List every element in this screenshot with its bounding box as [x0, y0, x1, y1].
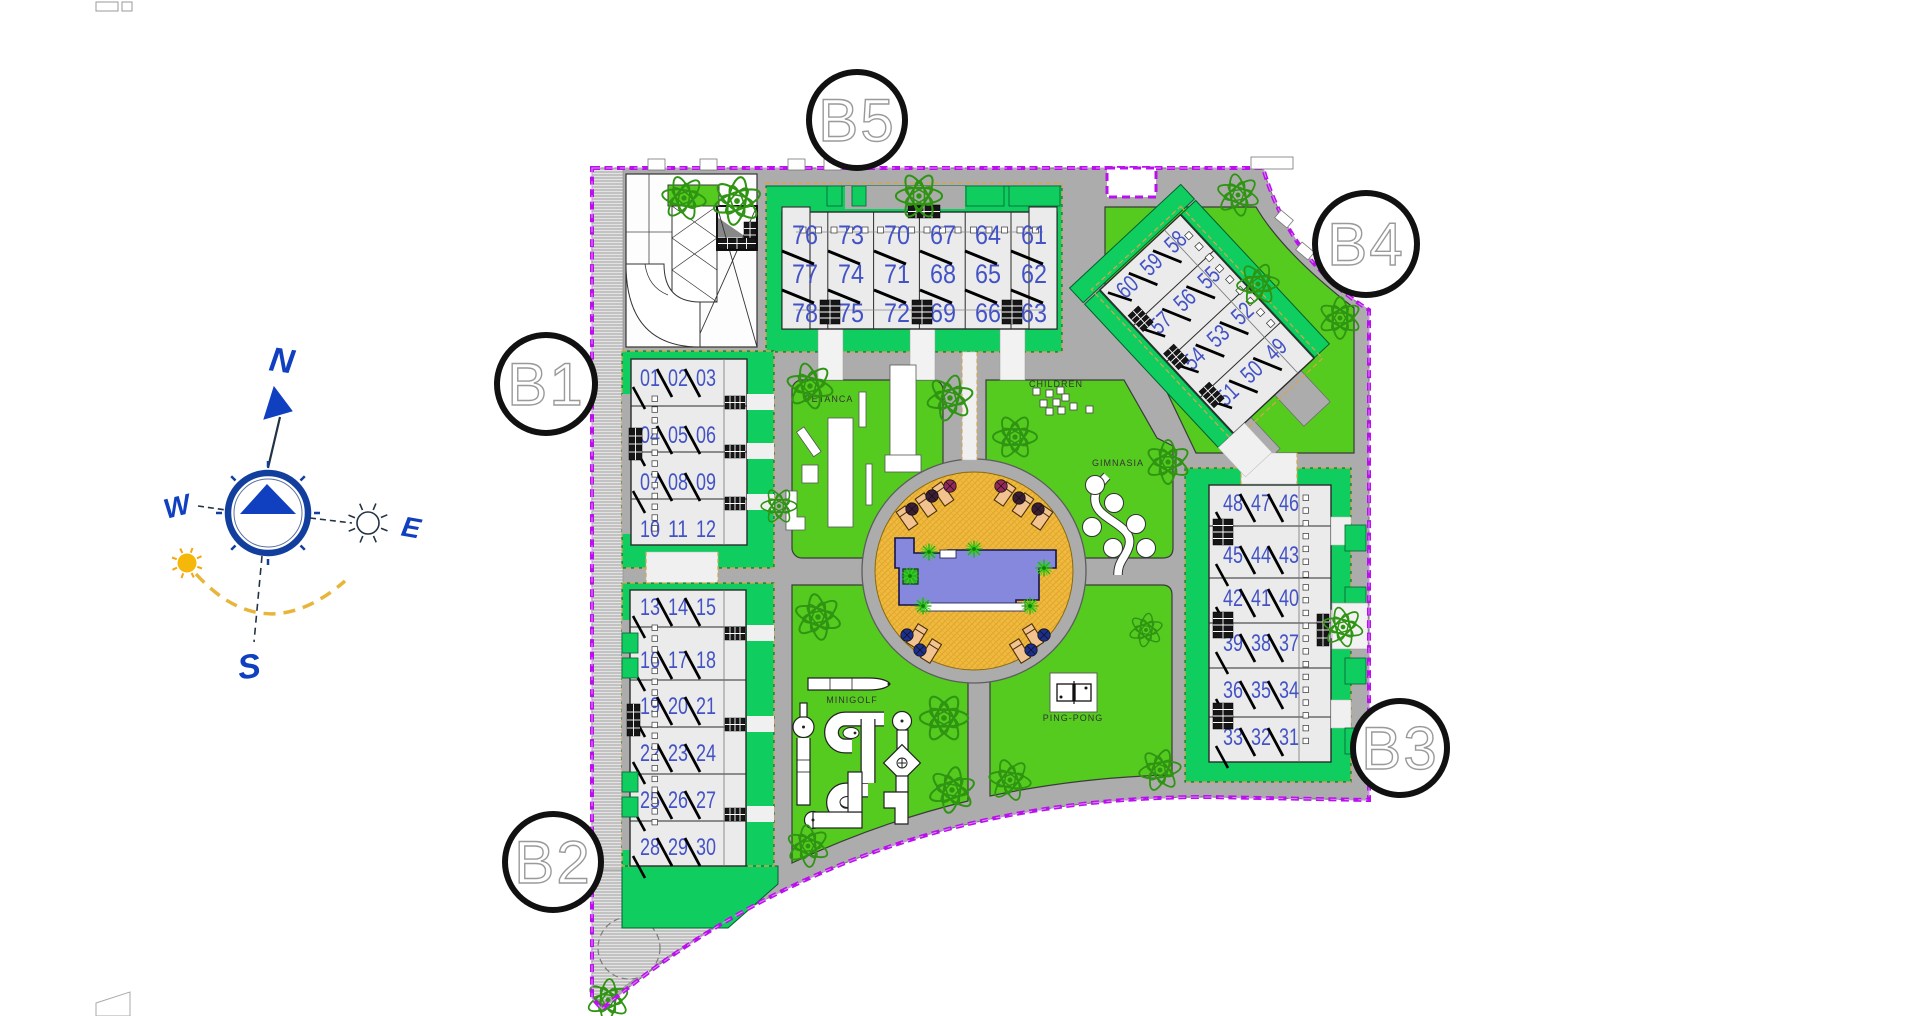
svg-text:W: W	[160, 488, 196, 525]
svg-text:11: 11	[668, 516, 688, 543]
svg-text:E: E	[399, 511, 424, 545]
svg-text:N: N	[267, 340, 298, 381]
svg-text:46: 46	[1279, 490, 1299, 517]
svg-text:64: 64	[975, 220, 1001, 250]
svg-text:06: 06	[696, 422, 716, 449]
svg-text:B4: B4	[1327, 211, 1404, 278]
svg-text:12: 12	[696, 516, 716, 543]
svg-text:PING-PONG: PING-PONG	[1043, 713, 1104, 723]
svg-text:MINIGOLF: MINIGOLF	[826, 695, 878, 705]
svg-text:B2: B2	[514, 829, 591, 896]
svg-text:61: 61	[1021, 220, 1047, 250]
svg-text:40: 40	[1279, 585, 1299, 612]
svg-text:B5: B5	[818, 87, 895, 154]
svg-text:CHILDREN: CHILDREN	[1029, 379, 1083, 389]
svg-text:76: 76	[792, 220, 818, 250]
svg-text:70: 70	[884, 220, 910, 250]
svg-text:GIMNASIA: GIMNASIA	[1092, 458, 1144, 468]
svg-text:15: 15	[696, 594, 716, 621]
svg-text:S: S	[235, 647, 263, 688]
svg-text:37: 37	[1279, 630, 1299, 657]
svg-text:73: 73	[838, 220, 864, 250]
svg-text:67: 67	[930, 220, 956, 250]
svg-text:18: 18	[696, 647, 716, 674]
svg-text:03: 03	[696, 365, 716, 392]
svg-text:09: 09	[696, 469, 716, 496]
svg-text:43: 43	[1279, 542, 1299, 569]
svg-text:27: 27	[696, 787, 716, 814]
svg-text:34: 34	[1279, 677, 1299, 704]
svg-text:B3: B3	[1361, 715, 1438, 782]
svg-text:B1: B1	[507, 351, 584, 418]
svg-text:21: 21	[696, 693, 716, 720]
svg-text:30: 30	[696, 834, 716, 861]
svg-text:31: 31	[1279, 724, 1299, 751]
svg-text:24: 24	[696, 740, 716, 767]
